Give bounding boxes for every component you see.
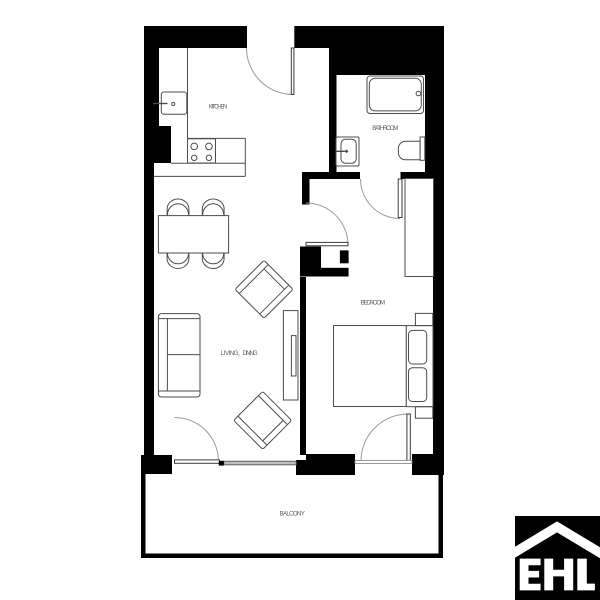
svg-text:KITCHEN: KITCHEN <box>209 103 228 110</box>
svg-text:BALCONY: BALCONY <box>280 510 305 517</box>
svg-text:LIVING,: LIVING, <box>221 350 240 357</box>
svg-text:BATHROOM: BATHROOM <box>372 125 398 132</box>
svg-text:DINING: DINING <box>243 350 258 357</box>
svg-text:BEDROOM: BEDROOM <box>361 299 385 306</box>
